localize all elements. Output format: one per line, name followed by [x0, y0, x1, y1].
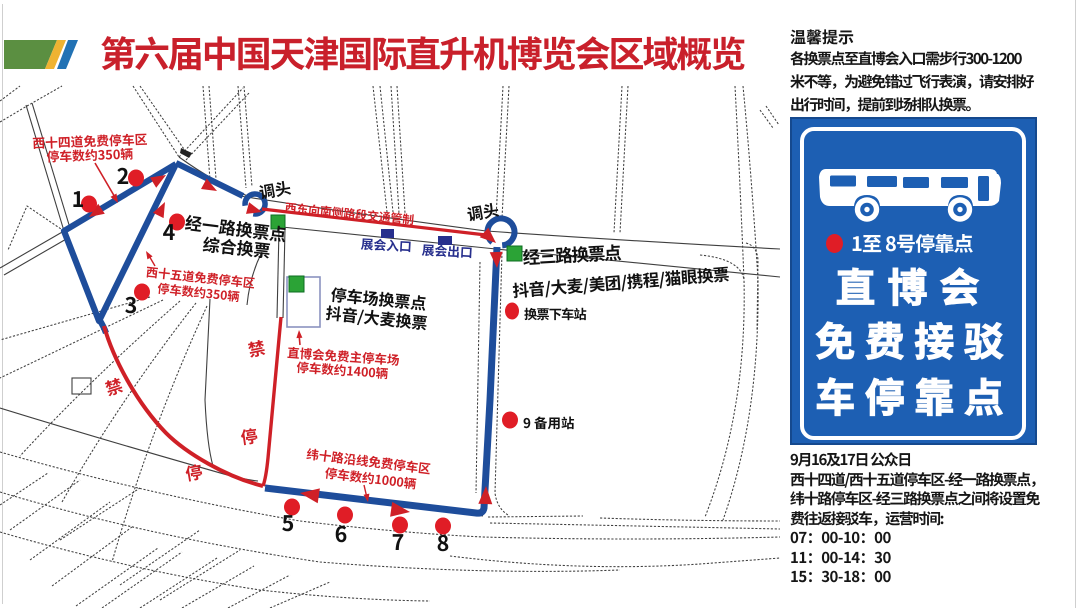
- svg-text:换票下车站: 换票下车站: [524, 304, 587, 323]
- svg-text:经三路换票点: 经三路换票点: [522, 240, 622, 270]
- svg-text:9 备用站: 9 备用站: [523, 412, 575, 432]
- svg-text:6: 6: [335, 518, 348, 549]
- svg-text:展会出口: 展会出口: [421, 240, 473, 262]
- svg-text:禁: 禁: [246, 334, 268, 362]
- svg-text:停: 停: [239, 422, 259, 449]
- svg-text:1: 1: [72, 183, 85, 214]
- svg-text:停车数约350辆: 停车数约350辆: [46, 143, 133, 165]
- svg-text:4: 4: [163, 216, 176, 247]
- svg-text:西东向南侧路段交通管制: 西东向南侧路段交通管制: [284, 199, 415, 228]
- svg-text:停: 停: [183, 458, 204, 486]
- svg-text:5: 5: [282, 507, 295, 538]
- svg-text:展会入口: 展会入口: [360, 234, 412, 256]
- svg-text:禁: 禁: [102, 371, 126, 400]
- svg-text:2: 2: [117, 160, 130, 191]
- svg-text:3: 3: [125, 289, 138, 320]
- svg-text:7: 7: [392, 526, 405, 557]
- svg-text:8: 8: [437, 527, 450, 558]
